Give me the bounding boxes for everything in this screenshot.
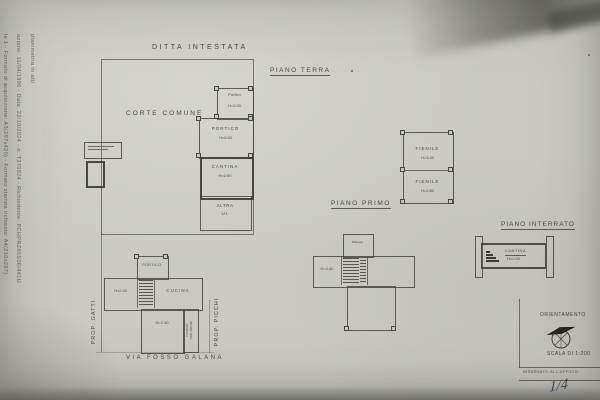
room-height: H=2.40 [313, 267, 341, 272]
room-height: H=2.80 [403, 189, 452, 194]
pillar [344, 326, 349, 331]
pillar [248, 116, 253, 121]
room-height: H=3.00 [217, 104, 252, 109]
scale-label: SCALA DI 1:200 [547, 352, 590, 358]
primo-bottom-room [347, 286, 396, 331]
property-line-right [209, 300, 210, 353]
illegible-note-box [84, 142, 122, 159]
handwritten-mark: 1/4 [549, 376, 568, 397]
room-label: Balcone [343, 241, 372, 244]
primo-stairs [343, 258, 359, 284]
compass-rose-icon [546, 322, 576, 352]
pillar [400, 199, 405, 204]
corte-comune-label: CORTE COMUNE [126, 110, 203, 117]
room-height: H=5.50 [199, 136, 252, 141]
main-wall [154, 279, 155, 308]
scan-speck [351, 70, 353, 72]
primo-wall [367, 257, 368, 285]
title-piano-interrato: PIANO INTERRATO [501, 221, 575, 230]
illegible-note-line [88, 146, 114, 147]
primo-wall [341, 257, 342, 285]
room-label: CANTINA [200, 164, 250, 169]
room-height: H=2.00 [507, 257, 520, 262]
scan-edge-bottom [0, 386, 600, 400]
room-label: FIENILE [403, 146, 452, 151]
illegible-note-line [88, 149, 108, 150]
pillar [400, 130, 405, 135]
main-portico [137, 256, 169, 280]
title-piano-primo: PIANO PRIMO [331, 200, 391, 209]
main-stairs [139, 280, 153, 307]
room-height: H=2.40 [104, 289, 137, 294]
scanned-cadastral-plan: planimetria in atti azione: 11/04/1996 -… [0, 0, 600, 400]
room-label: PORTICO [137, 263, 167, 267]
room-label: CUCINA [155, 288, 201, 293]
scan-shadow-top-right [405, 0, 600, 57]
pillar [448, 167, 453, 172]
margin-text-status: planimetria in atti [29, 34, 35, 83]
footer-box-top-line [519, 367, 600, 368]
margin-text-request: azione: 11/04/1996 - Data: 22/10/2024 - … [15, 34, 21, 283]
room-label: FIENILE [403, 179, 452, 184]
title-ditta-intestata: DITTA INTESTATA [152, 44, 248, 52]
property-line-left [101, 233, 102, 352]
title-piano-terra: PIANO TERRA [270, 67, 330, 76]
stair-step [486, 257, 496, 259]
pillar [134, 254, 139, 259]
main-bottom-room [141, 309, 185, 354]
room-label: ALTRA [200, 203, 250, 208]
stair-step [486, 260, 499, 262]
footer-box-left-line [519, 299, 520, 368]
prop-picchi-label: PROP. PICCHI [214, 298, 220, 347]
street-line [96, 352, 214, 353]
scan-speck [588, 54, 590, 56]
pillar [248, 86, 253, 91]
primo-top-room [343, 234, 374, 258]
cavedio-line2: NON ABITAB. [190, 321, 194, 340]
room-height: H=3.40 [403, 156, 452, 161]
room-label: CANTINA [505, 249, 526, 256]
riservato-ufficio-label: RISERVATO ALL'UFFICIO [523, 370, 578, 374]
primo-stairs-2 [360, 260, 366, 284]
prop-gatti-label: PROP. GATTI [91, 300, 97, 345]
pillar [163, 254, 168, 259]
room-height: H=2.40 [141, 321, 183, 326]
room-label: PORTICO [199, 126, 252, 131]
pillar [400, 167, 405, 172]
pillar [196, 116, 201, 121]
room-height: H=2.60 [200, 174, 250, 179]
fienile-divider [403, 170, 452, 171]
main-wall [137, 279, 138, 308]
pillar [448, 130, 453, 135]
street-label: VIA FOSSO GALANA [126, 355, 224, 362]
interrato-stairs-icon [486, 250, 499, 262]
cavedio-label: CAVEDIO NON ABITAB. [186, 321, 194, 340]
pillar [391, 326, 396, 331]
room-label: Portico [217, 93, 252, 98]
stair-step [486, 254, 493, 256]
tiny-unit-outline [86, 161, 105, 188]
room-label-sub: U.I. [200, 211, 250, 216]
pillar [214, 86, 219, 91]
scan-shadow-top-right-2 [547, 0, 600, 33]
stair-step [486, 251, 490, 253]
interrato-end-cap [546, 236, 554, 278]
pillar [448, 199, 453, 204]
orientamento-label: ORIENTAMENTO [540, 313, 586, 319]
margin-text-format: le 1 - Formato di acquisizione: A3(297x4… [2, 34, 8, 274]
